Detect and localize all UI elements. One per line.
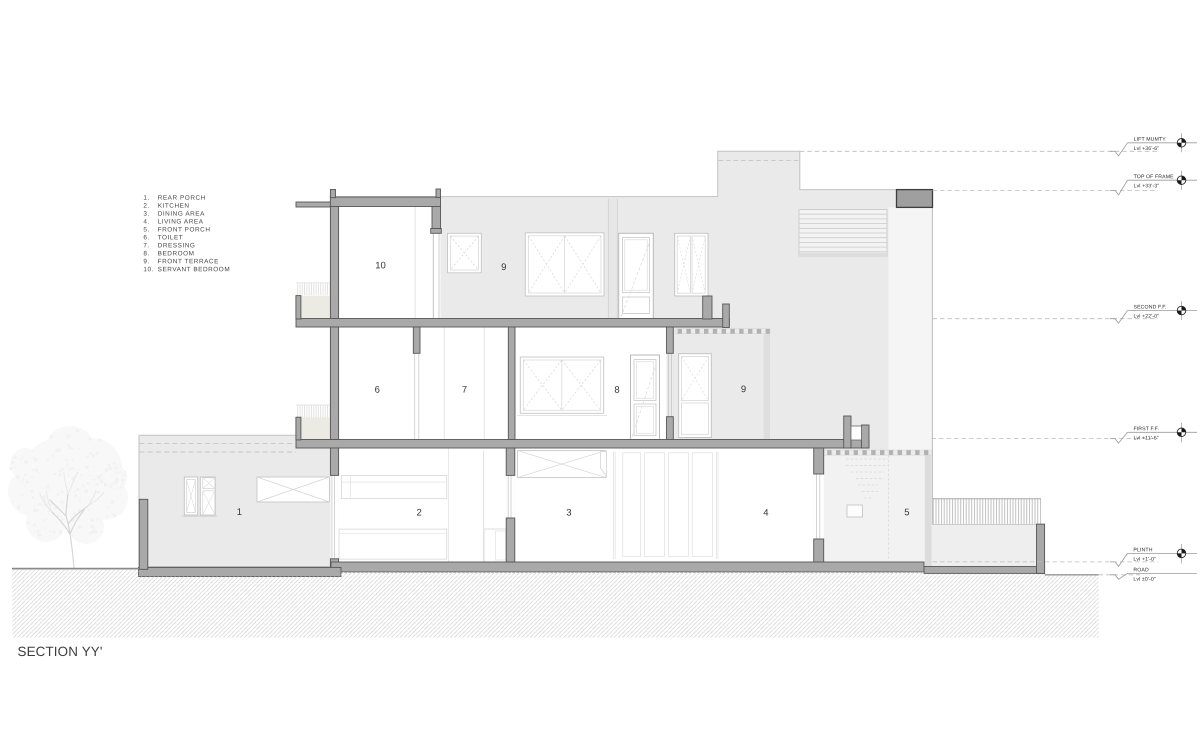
- svg-text:DINING AREA: DINING AREA: [158, 211, 205, 218]
- svg-text:LIVING AREA: LIVING AREA: [158, 219, 204, 226]
- svg-text:Lvl +33'-3": Lvl +33'-3": [1134, 183, 1160, 189]
- svg-text:7.: 7.: [143, 242, 149, 249]
- svg-text:FIRST F.F.: FIRST F.F.: [1133, 426, 1159, 432]
- svg-text:9.: 9.: [143, 258, 149, 265]
- svg-text:6.: 6.: [143, 234, 149, 241]
- svg-text:Lvl +1'-0": Lvl +1'-0": [1133, 557, 1156, 563]
- svg-text:FRONT TERRACE: FRONT TERRACE: [158, 258, 219, 265]
- svg-text:Lvl +11'-6": Lvl +11'-6": [1133, 435, 1158, 441]
- svg-text:Lvl +36'-6": Lvl +36'-6": [1134, 146, 1160, 152]
- svg-text:8: 8: [614, 385, 619, 396]
- svg-text:1: 1: [237, 507, 242, 518]
- svg-text:SECTION YY': SECTION YY': [17, 644, 102, 659]
- svg-text:TOILET: TOILET: [158, 234, 184, 241]
- svg-text:10.: 10.: [143, 266, 154, 273]
- svg-text:FRONT PORCH: FRONT PORCH: [158, 226, 211, 233]
- svg-text:TOP OF FRAME: TOP OF FRAME: [1134, 174, 1175, 180]
- svg-text:REAR PORCH: REAR PORCH: [158, 195, 206, 202]
- svg-text:SERVANT BEDROOM: SERVANT BEDROOM: [158, 266, 231, 273]
- svg-text:9: 9: [741, 384, 746, 395]
- svg-text:Lvl +22'-0": Lvl +22'-0": [1134, 314, 1160, 320]
- svg-text:3: 3: [566, 508, 571, 519]
- svg-text:ROAD: ROAD: [1133, 567, 1149, 573]
- svg-text:DRESSING: DRESSING: [158, 242, 196, 249]
- svg-text:8.: 8.: [143, 250, 149, 257]
- svg-text:2.: 2.: [143, 203, 149, 210]
- svg-text:5.: 5.: [143, 226, 149, 233]
- svg-text:9: 9: [501, 262, 506, 273]
- svg-text:4.: 4.: [143, 219, 149, 226]
- svg-text:1.: 1.: [143, 195, 149, 202]
- svg-text:KITCHEN: KITCHEN: [158, 203, 190, 210]
- svg-text:2: 2: [416, 507, 421, 518]
- svg-text:BEDROOM: BEDROOM: [158, 250, 195, 257]
- svg-text:4: 4: [763, 508, 768, 519]
- svg-text:5: 5: [904, 507, 909, 518]
- svg-text:Lvl ±0'-0": Lvl ±0'-0": [1133, 577, 1155, 583]
- svg-text:10: 10: [375, 260, 386, 271]
- svg-text:SECOND F.F.: SECOND F.F.: [1134, 304, 1167, 310]
- svg-text:7: 7: [462, 385, 467, 396]
- svg-text:LIFT MUMTY: LIFT MUMTY: [1134, 137, 1167, 143]
- svg-text:6: 6: [375, 385, 380, 396]
- svg-text:PLINTH: PLINTH: [1133, 547, 1152, 553]
- svg-text:3.: 3.: [143, 211, 149, 218]
